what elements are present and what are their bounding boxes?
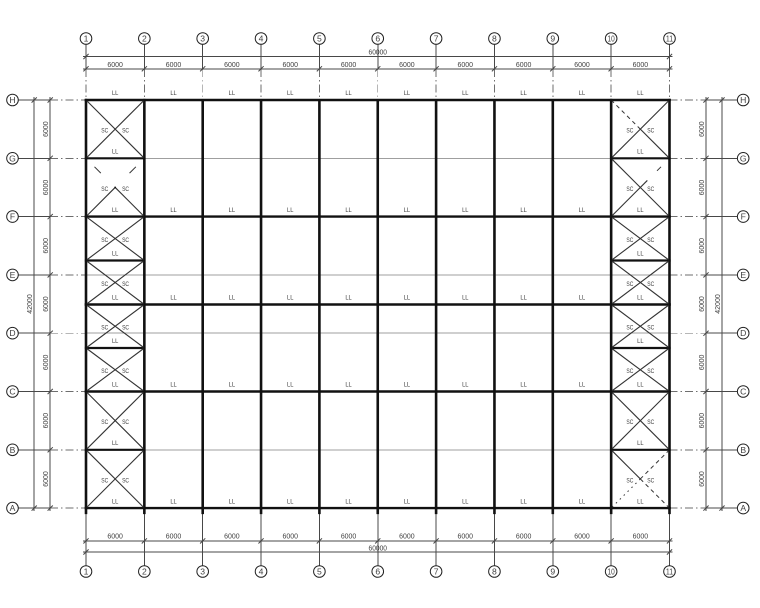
svg-text:6000: 6000 bbox=[41, 180, 50, 196]
svg-text:LL: LL bbox=[404, 499, 411, 505]
svg-text:SC: SC bbox=[647, 478, 655, 484]
svg-text:SC: SC bbox=[101, 282, 109, 288]
svg-text:SC: SC bbox=[647, 420, 655, 426]
svg-text:H: H bbox=[9, 95, 15, 105]
svg-text:6000: 6000 bbox=[697, 121, 706, 137]
svg-text:6: 6 bbox=[375, 34, 380, 44]
svg-text:LL: LL bbox=[112, 150, 119, 156]
svg-text:6000: 6000 bbox=[41, 296, 50, 312]
svg-text:6000: 6000 bbox=[697, 471, 706, 487]
svg-text:SC: SC bbox=[122, 478, 130, 484]
svg-text:LL: LL bbox=[637, 252, 644, 258]
svg-text:5: 5 bbox=[317, 34, 322, 44]
svg-text:LL: LL bbox=[170, 383, 177, 389]
svg-text:G: G bbox=[9, 153, 16, 163]
svg-text:LL: LL bbox=[345, 91, 352, 97]
svg-text:E: E bbox=[10, 270, 16, 280]
svg-text:6000: 6000 bbox=[458, 60, 474, 69]
svg-text:8: 8 bbox=[492, 34, 497, 44]
svg-text:D: D bbox=[9, 328, 15, 338]
svg-text:LL: LL bbox=[462, 208, 469, 214]
svg-text:LL: LL bbox=[287, 383, 294, 389]
svg-text:6000: 6000 bbox=[166, 531, 182, 540]
svg-text:6000: 6000 bbox=[633, 531, 649, 540]
svg-text:LL: LL bbox=[520, 91, 527, 97]
svg-text:6000: 6000 bbox=[516, 531, 532, 540]
svg-text:SC: SC bbox=[626, 129, 634, 135]
svg-text:6000: 6000 bbox=[341, 531, 357, 540]
svg-text:LL: LL bbox=[229, 91, 236, 97]
svg-text:F: F bbox=[741, 212, 746, 222]
svg-text:SC: SC bbox=[101, 420, 109, 426]
svg-text:6000: 6000 bbox=[41, 413, 50, 429]
svg-text:LL: LL bbox=[287, 91, 294, 97]
svg-text:SC: SC bbox=[626, 187, 634, 193]
svg-text:9: 9 bbox=[550, 567, 555, 577]
svg-text:6000: 6000 bbox=[697, 180, 706, 196]
svg-text:LL: LL bbox=[170, 208, 177, 214]
svg-text:SC: SC bbox=[626, 369, 634, 375]
svg-text:LL: LL bbox=[229, 383, 236, 389]
svg-text:LL: LL bbox=[579, 91, 586, 97]
svg-text:LL: LL bbox=[520, 383, 527, 389]
svg-text:LL: LL bbox=[637, 339, 644, 345]
svg-text:60000: 60000 bbox=[369, 48, 388, 57]
svg-text:LL: LL bbox=[112, 441, 119, 447]
svg-text:10: 10 bbox=[608, 34, 615, 44]
svg-text:LL: LL bbox=[579, 383, 586, 389]
svg-text:SC: SC bbox=[101, 129, 109, 135]
svg-text:C: C bbox=[9, 387, 15, 397]
svg-text:LL: LL bbox=[112, 252, 119, 258]
svg-text:LL: LL bbox=[579, 208, 586, 214]
svg-text:SC: SC bbox=[626, 420, 634, 426]
svg-text:LL: LL bbox=[112, 383, 119, 389]
svg-text:G: G bbox=[740, 153, 747, 163]
svg-text:9: 9 bbox=[550, 34, 555, 44]
svg-text:6000: 6000 bbox=[224, 60, 240, 69]
svg-text:LL: LL bbox=[112, 208, 119, 214]
svg-text:LL: LL bbox=[345, 208, 352, 214]
svg-text:6000: 6000 bbox=[282, 531, 298, 540]
svg-text:LL: LL bbox=[462, 296, 469, 302]
svg-text:LL: LL bbox=[404, 383, 411, 389]
svg-text:6000: 6000 bbox=[107, 60, 123, 69]
svg-text:LL: LL bbox=[345, 383, 352, 389]
svg-text:6000: 6000 bbox=[697, 296, 706, 312]
svg-text:6000: 6000 bbox=[166, 60, 182, 69]
svg-text:6000: 6000 bbox=[697, 413, 706, 429]
svg-text:SC: SC bbox=[101, 238, 109, 244]
svg-text:SC: SC bbox=[101, 326, 109, 332]
svg-text:LL: LL bbox=[345, 499, 352, 505]
svg-text:2: 2 bbox=[142, 567, 147, 577]
svg-text:SC: SC bbox=[626, 238, 634, 244]
svg-text:LL: LL bbox=[404, 91, 411, 97]
svg-text:SC: SC bbox=[647, 238, 655, 244]
svg-text:7: 7 bbox=[434, 567, 439, 577]
svg-text:SC: SC bbox=[647, 369, 655, 375]
svg-text:6000: 6000 bbox=[697, 238, 706, 254]
svg-text:LL: LL bbox=[637, 150, 644, 156]
svg-text:6000: 6000 bbox=[41, 238, 50, 254]
svg-text:SC: SC bbox=[122, 420, 130, 426]
svg-text:F: F bbox=[10, 212, 15, 222]
svg-text:10: 10 bbox=[608, 567, 615, 577]
svg-text:LL: LL bbox=[345, 296, 352, 302]
svg-text:4: 4 bbox=[259, 34, 264, 44]
svg-text:LL: LL bbox=[637, 208, 644, 214]
svg-text:11: 11 bbox=[666, 567, 673, 577]
svg-text:6000: 6000 bbox=[107, 531, 123, 540]
svg-text:SC: SC bbox=[122, 187, 130, 193]
svg-text:42000: 42000 bbox=[713, 294, 722, 314]
svg-text:D: D bbox=[740, 328, 746, 338]
svg-text:LL: LL bbox=[462, 499, 469, 505]
svg-text:LL: LL bbox=[520, 499, 527, 505]
svg-text:6000: 6000 bbox=[458, 531, 474, 540]
svg-text:SC: SC bbox=[122, 282, 130, 288]
svg-text:LL: LL bbox=[170, 91, 177, 97]
svg-text:LL: LL bbox=[287, 208, 294, 214]
svg-text:A: A bbox=[10, 503, 16, 513]
svg-text:SC: SC bbox=[122, 369, 130, 375]
svg-text:2: 2 bbox=[142, 34, 147, 44]
svg-text:3: 3 bbox=[200, 34, 205, 44]
svg-text:LL: LL bbox=[170, 296, 177, 302]
svg-text:60000: 60000 bbox=[369, 543, 388, 552]
svg-text:3: 3 bbox=[200, 567, 205, 577]
svg-text:LL: LL bbox=[520, 296, 527, 302]
svg-text:SC: SC bbox=[122, 129, 130, 135]
svg-text:LL: LL bbox=[579, 296, 586, 302]
svg-text:LL: LL bbox=[404, 296, 411, 302]
svg-text:SC: SC bbox=[647, 129, 655, 135]
svg-text:6000: 6000 bbox=[697, 355, 706, 371]
svg-text:6000: 6000 bbox=[224, 531, 240, 540]
svg-text:6000: 6000 bbox=[282, 60, 298, 69]
svg-text:LL: LL bbox=[462, 383, 469, 389]
svg-text:SC: SC bbox=[101, 369, 109, 375]
svg-text:B: B bbox=[740, 445, 746, 455]
svg-text:5: 5 bbox=[317, 567, 322, 577]
svg-text:LL: LL bbox=[287, 296, 294, 302]
svg-text:LL: LL bbox=[170, 499, 177, 505]
svg-text:B: B bbox=[10, 445, 16, 455]
svg-text:E: E bbox=[740, 270, 746, 280]
svg-text:SC: SC bbox=[626, 478, 634, 484]
svg-text:42000: 42000 bbox=[25, 294, 34, 314]
svg-text:6000: 6000 bbox=[633, 60, 649, 69]
svg-text:SC: SC bbox=[101, 187, 109, 193]
svg-text:SC: SC bbox=[122, 238, 130, 244]
svg-text:6: 6 bbox=[375, 567, 380, 577]
svg-text:6000: 6000 bbox=[399, 60, 415, 69]
svg-text:6000: 6000 bbox=[41, 355, 50, 371]
svg-text:C: C bbox=[740, 387, 746, 397]
svg-text:6000: 6000 bbox=[399, 531, 415, 540]
svg-text:LL: LL bbox=[637, 296, 644, 302]
svg-text:A: A bbox=[740, 503, 746, 513]
svg-text:8: 8 bbox=[492, 567, 497, 577]
svg-text:SC: SC bbox=[647, 326, 655, 332]
svg-text:LL: LL bbox=[229, 208, 236, 214]
svg-text:LL: LL bbox=[404, 208, 411, 214]
svg-text:11: 11 bbox=[666, 34, 673, 44]
svg-text:SC: SC bbox=[626, 282, 634, 288]
svg-text:LL: LL bbox=[520, 208, 527, 214]
svg-text:6000: 6000 bbox=[516, 60, 532, 69]
svg-text:1: 1 bbox=[84, 567, 89, 577]
svg-text:LL: LL bbox=[229, 499, 236, 505]
svg-text:6000: 6000 bbox=[341, 60, 357, 69]
svg-text:LL: LL bbox=[112, 91, 119, 97]
svg-text:LL: LL bbox=[637, 441, 644, 447]
svg-text:LL: LL bbox=[579, 499, 586, 505]
svg-text:SC: SC bbox=[647, 187, 655, 193]
svg-text:LL: LL bbox=[229, 296, 236, 302]
svg-text:6000: 6000 bbox=[574, 60, 590, 69]
svg-text:LL: LL bbox=[462, 91, 469, 97]
svg-text:LL: LL bbox=[112, 339, 119, 345]
svg-text:4: 4 bbox=[259, 567, 264, 577]
svg-text:SC: SC bbox=[122, 326, 130, 332]
svg-text:SC: SC bbox=[647, 282, 655, 288]
svg-text:1: 1 bbox=[84, 34, 89, 44]
svg-text:7: 7 bbox=[434, 34, 439, 44]
svg-text:SC: SC bbox=[101, 478, 109, 484]
svg-text:6000: 6000 bbox=[41, 121, 50, 137]
svg-text:LL: LL bbox=[112, 296, 119, 302]
svg-text:H: H bbox=[740, 95, 746, 105]
svg-text:6000: 6000 bbox=[574, 531, 590, 540]
svg-text:LL: LL bbox=[637, 91, 644, 97]
svg-text:SC: SC bbox=[626, 326, 634, 332]
svg-text:LL: LL bbox=[287, 499, 294, 505]
svg-text:LL: LL bbox=[637, 499, 644, 505]
svg-text:LL: LL bbox=[637, 383, 644, 389]
svg-text:6000: 6000 bbox=[41, 471, 50, 487]
svg-text:LL: LL bbox=[112, 499, 119, 505]
